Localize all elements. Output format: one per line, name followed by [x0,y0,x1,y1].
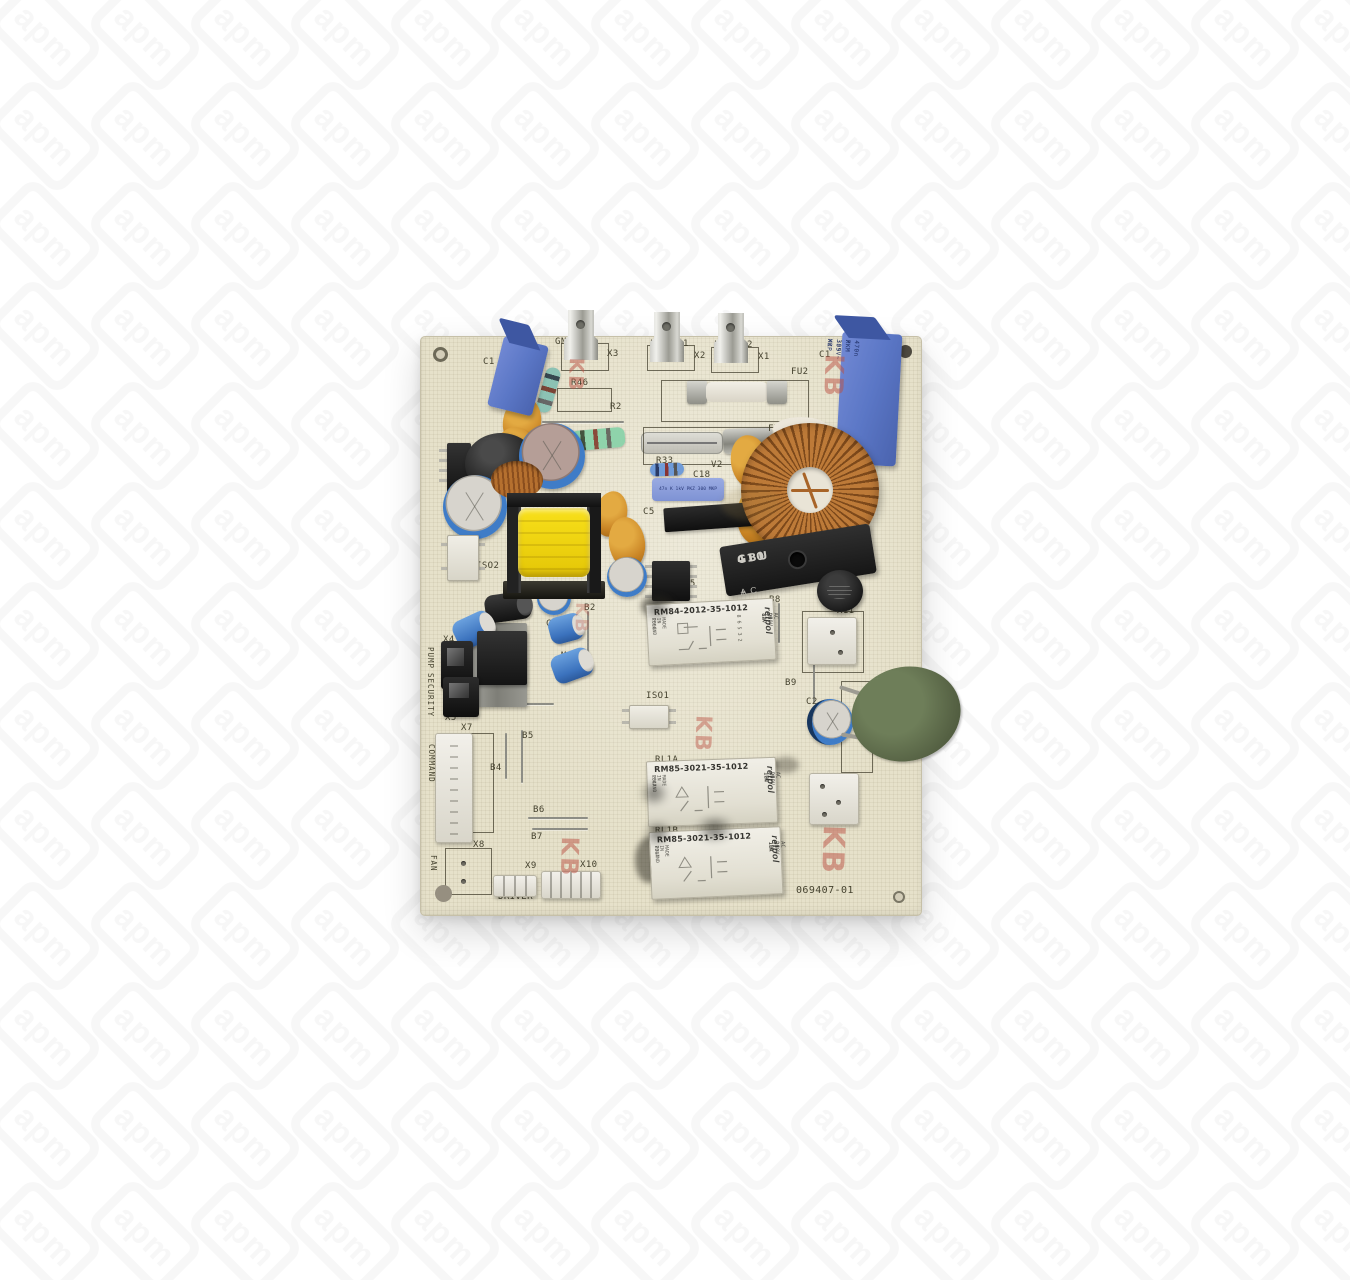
apm-watermark-logo: apm [85,1076,205,1196]
relay-pin-numbers: 8 6 5 3 2 [735,614,742,641]
bridge-minus: − [740,586,751,597]
grime-smudge [638,596,675,620]
apm-watermark-logo: apm [485,176,605,296]
silk-label-v2: V2 [711,460,723,470]
bridge-value: 410 [736,549,767,566]
relay-model: RM85-3021-35-1012 [654,761,759,774]
apm-watermark-logo: apm [385,1176,505,1280]
silk-label-security: SECURITY [426,673,435,717]
film-capacitor-c18: 47n K 1kV PKZ 300 MKP [652,478,724,501]
apm-watermark-logo: apm [185,676,305,796]
capacitor-m6 [548,645,596,686]
apm-watermark-logo: apm [885,976,1005,1096]
qc-ink-stamp: KB [557,836,582,878]
apm-watermark-logo: apm [285,576,405,696]
silk-label-fan: FAN [429,855,438,872]
apm-watermark-logo: apm [785,976,905,1096]
apm-watermark-logo: apm [485,1176,605,1280]
connector-x7 [435,733,473,843]
apm-watermark-logo: apm [85,576,205,696]
apm-watermark-logo: apm [1185,1076,1305,1196]
apm-watermark-logo: apm [885,176,1005,296]
apm-watermark-logo: apm [985,1076,1105,1196]
apm-watermark-logo: apm [1285,376,1350,496]
apm-watermark-logo: apm [185,376,305,496]
silk-label-b4: B4 [490,763,502,773]
apm-watermark-logo: apm [885,1076,1005,1196]
silk-label-b7: B7 [531,832,543,842]
relay-date-code: 2347 [653,846,658,858]
apm-watermark-logo: apm [285,0,405,96]
jumper-wire-b4 [505,733,507,779]
apm-watermark-logo: apm [1085,776,1205,896]
apm-watermark-logo: apm [785,1176,905,1280]
apm-watermark-logo: apm [985,976,1105,1096]
apm-watermark-logo: apm [0,876,105,996]
grime-smudge [636,781,673,804]
qc-ink-stamp: KB [571,602,590,634]
connector-pin [820,784,825,789]
apm-watermark-logo: apm [1085,276,1205,396]
capacitor-fu3-black [817,570,863,612]
connector-pin [822,812,827,817]
qc-ink-stamp: KB [816,824,848,875]
apm-watermark-logo: apm [1285,976,1350,1096]
relay-schematic [673,617,731,656]
apm-watermark-logo: apm [185,1076,305,1196]
mounting-hole [433,347,448,362]
apm-watermark-logo: apm [0,76,105,196]
silk-label-x1: X1 [758,352,770,362]
qc-ink-stamp: KB [566,357,587,392]
apm-watermark-logo: apm [185,76,305,196]
apm-watermark-logo: apm [1185,1176,1305,1280]
apm-watermark-logo: apm [885,1176,1005,1280]
silk-label-x3: X3 [607,349,619,359]
relay-schematic [676,845,734,887]
apm-watermark-logo: apm [0,676,105,796]
transformer-yellow-tape [518,508,590,577]
silk-outline [661,380,809,422]
qc-ink-stamp: KB [819,354,847,399]
apm-watermark-logo: apm [1285,176,1350,296]
apm-watermark-logo: apm [85,1176,205,1280]
mounting-hole [435,885,452,902]
apm-watermark-logo: apm [485,1076,605,1196]
apm-watermark-logo: apm [185,276,305,396]
apm-watermark-logo: apm [785,76,905,196]
apm-watermark-logo: apm [385,0,505,96]
apm-watermark-logo: apm [1185,376,1305,496]
apm-watermark-logo: apm [85,76,205,196]
optocoupler-iso1 [629,705,669,729]
apm-watermark-logo: apm [685,1076,805,1196]
relay-schematic [673,775,730,817]
apm-watermark-logo: apm [785,176,905,296]
apm-watermark-logo: apm [0,776,105,896]
silk-label-iso2: ISO2 [476,561,499,571]
apm-watermark-logo: apm [0,976,105,1096]
apm-watermark-logo: apm [385,176,505,296]
apm-watermark-logo: apm [985,476,1105,596]
toroid-core [787,467,833,513]
relay-rl1a: RM85-3021-35-1012 MADE IN POLAND 2347 DC… [646,757,778,827]
silk-label-iso1: ISO1 [646,691,669,701]
silk-label-x7: X7 [461,723,473,733]
apm-watermark-logo: apm [1285,1176,1350,1280]
apm-watermark-logo: apm [1085,0,1205,96]
silk-label-b6: B6 [533,805,545,815]
silk-outline [470,733,494,833]
apm-watermark-logo: apm [985,676,1105,796]
apm-watermark-logo: apm [1185,176,1305,296]
electrolytic-capacitor-small [607,557,647,597]
apm-watermark-logo: apm [1185,776,1305,896]
apm-watermark-logo: apm [0,376,105,496]
apm-watermark-logo: apm [385,976,505,1096]
apm-watermark-logo: apm [485,76,605,196]
apm-watermark-logo: apm [385,1076,505,1196]
apm-watermark-logo: apm [285,676,405,796]
apm-watermark-logo: apm [1085,976,1205,1096]
apm-watermark-logo: apm [285,876,405,996]
apm-watermark-logo: apm [1085,876,1205,996]
silk-label-b5: B5 [522,731,534,741]
apm-watermark-logo: apm [285,276,405,396]
apm-watermark-logo: apm [1285,676,1350,796]
connector-x6 [809,773,859,825]
smps-transformer [507,493,601,593]
transistor-q6 [477,631,527,685]
apm-watermark-logo: apm [1285,776,1350,896]
apm-watermark-logo: apm [0,276,105,396]
relay-brand: relpol [763,607,774,635]
apm-watermark-logo: apm [85,976,205,1096]
apm-watermark-logo: apm [685,976,805,1096]
relay-rl1b: RM85-3021-35-1012 MADE IN POLAND 2347 DC… [649,826,784,900]
apm-watermark-logo: apm [1285,1076,1350,1196]
photo-scene: { "watermark": { "logo_text": "apm" }, "… [0,0,1350,1280]
c18-marking: 47n K 1kV PKZ 300 MKP [659,487,717,493]
apm-watermark-logo: apm [1185,876,1305,996]
apm-watermark-logo: apm [985,176,1105,296]
apm-watermark-logo: apm [885,76,1005,196]
apm-watermark-logo: apm [285,76,405,196]
apm-watermark-logo: apm [85,676,205,796]
silk-label-fu2: FU2 [791,367,808,377]
apm-watermark-logo: apm [285,776,405,896]
relay-rm84: RM84-2012-35-1012 MADE IN POLAND 2S9G 8 … [645,598,776,667]
apm-watermark-logo: apm [0,1076,105,1196]
apm-watermark-logo: apm [285,476,405,596]
opto-pins [622,709,629,712]
apm-watermark-logo: apm [1085,76,1205,196]
apm-watermark-logo: apm [585,976,705,1096]
apm-watermark-logo: apm [985,0,1105,96]
apm-watermark-logo: apm [485,976,605,1096]
apm-watermark-logo: apm [0,1176,105,1280]
silk-outline [445,848,492,895]
qc-ink-stamp: KB [690,715,713,754]
apm-watermark-logo: apm [1085,1176,1205,1280]
apm-watermark-logo: apm [985,776,1105,896]
apm-watermark-logo: apm [985,376,1105,496]
apm-watermark-logo: apm [685,176,805,296]
connector-pin [836,800,841,805]
apm-watermark-logo: apm [85,776,205,896]
apm-watermark-logo: apm [985,276,1105,396]
apm-watermark-logo: apm [1185,576,1305,696]
apm-watermark-logo: apm [685,76,805,196]
electrolytic-capacitor-c2 [807,699,853,745]
silk-label-x9: X9 [525,861,537,871]
apm-watermark-logo: apm [485,0,605,96]
jumper-wire-b7 [532,828,588,830]
apm-watermark-logo: apm [85,376,205,496]
resistor-r33 [650,462,684,476]
apm-watermark-logo: apm [1085,576,1205,696]
apm-watermark-logo: apm [385,76,505,196]
ic-pins [439,449,447,452]
apm-watermark-logo: apm [185,0,305,96]
connector-pin [830,630,835,635]
apm-watermark-logo: apm [1185,476,1305,596]
apm-watermark-logo: apm [1185,0,1305,96]
apm-watermark-logo: apm [85,176,205,296]
apm-watermark-logo: apm [0,0,105,96]
apm-watermark-logo: apm [585,1076,705,1196]
apm-watermark-logo: apm [585,0,705,96]
apm-watermark-logo: apm [285,976,405,1096]
apm-watermark-logo: apm [185,1176,305,1280]
silk-label-r2: R2 [610,402,622,412]
apm-watermark-logo: apm [185,476,305,596]
optocoupler-iso2 [447,535,479,581]
jumper-wire-b6 [528,817,588,819]
relay-brand: relpol [765,766,776,794]
spade-terminal-x1 [714,313,748,363]
apm-watermark-logo: apm [585,76,705,196]
transformer-top [507,493,601,507]
apm-watermark-logo: apm [685,1176,805,1280]
silk-label-c1_left: C1 [483,357,495,367]
stain [721,487,781,521]
apm-watermark-logo: apm [1185,676,1305,796]
apm-watermark-logo: apm [0,476,105,596]
apm-watermark-logo: apm [985,1176,1105,1280]
apm-watermark-logo: apm [1185,76,1305,196]
stain [773,757,799,773]
apm-watermark-logo: apm [1185,276,1305,396]
apm-watermark-logo: apm [985,76,1105,196]
apm-watermark-logo: apm [585,176,705,296]
apm-watermark-logo: apm [1085,476,1205,596]
connector-x5-security [443,677,479,717]
apm-watermark-logo: apm [85,476,205,596]
relay-date-code: 2S9G [650,618,656,630]
apm-watermark-logo: apm [285,176,405,296]
apm-watermark-logo: apm [785,0,905,96]
apm-watermark-logo: apm [85,876,205,996]
apm-watermark-logo: apm [1185,976,1305,1096]
apm-watermark-logo: apm [0,176,105,296]
apm-watermark-logo: apm [185,776,305,896]
relay-brand: relpol [770,835,781,863]
silk-label-pump: PUMP [426,647,435,669]
apm-watermark-logo: apm [285,1176,405,1280]
apm-watermark-logo: apm [285,376,405,496]
apm-watermark-logo: apm [285,1076,405,1196]
apm-watermark-logo: apm [585,1176,705,1280]
apm-watermark-logo: apm [185,176,305,296]
apm-watermark-logo: apm [1085,676,1205,796]
connector-pin [838,650,843,655]
apm-watermark-logo: apm [1085,1076,1205,1196]
apm-watermark-logo: apm [885,0,1005,96]
apm-watermark-logo: apm [985,876,1105,996]
apm-watermark-logo: apm [185,976,305,1096]
apm-watermark-logo: apm [785,1076,905,1196]
silk-label-pn: 069407-01 [796,885,854,896]
apm-watermark-logo: apm [0,576,105,696]
soic-pins [645,565,652,568]
apm-watermark-logo: apm [85,276,205,396]
silk-label-b9: B9 [785,678,797,688]
spade-terminal-x2 [650,312,684,362]
apm-watermark-logo: apm [685,0,805,96]
apm-watermark-logo: apm [1285,476,1350,596]
apm-watermark-logo: apm [185,576,305,696]
connector-x11 [807,617,857,665]
apm-watermark-logo: apm [185,876,305,996]
capacitor-marking-line2: PKM 339 MKP [824,339,852,353]
bridge-mounting-hole [789,551,806,568]
apm-watermark-logo: apm [985,576,1105,696]
apm-watermark-logo: apm [1085,176,1205,296]
apm-watermark-logo: apm [1285,576,1350,696]
connector-x9-driver [493,875,537,897]
apm-watermark-logo: apm [1285,76,1350,196]
spade-terminal-x3 [564,310,598,360]
silk-label-x2: X2 [694,351,706,361]
apm-watermark-logo: apm [1285,876,1350,996]
silk-label-x8: X8 [473,840,485,850]
apm-watermark-logo: apm [1085,376,1205,496]
apm-watermark-logo: apm [85,0,205,96]
apm-watermark-logo: apm [1285,276,1350,396]
silk-label-c5: C5 [643,507,655,517]
mounting-hole [893,891,905,903]
pcb-board: 470n X 305V~ X2 PKM 339 MKP 47n K 1kV PK… [420,336,922,916]
